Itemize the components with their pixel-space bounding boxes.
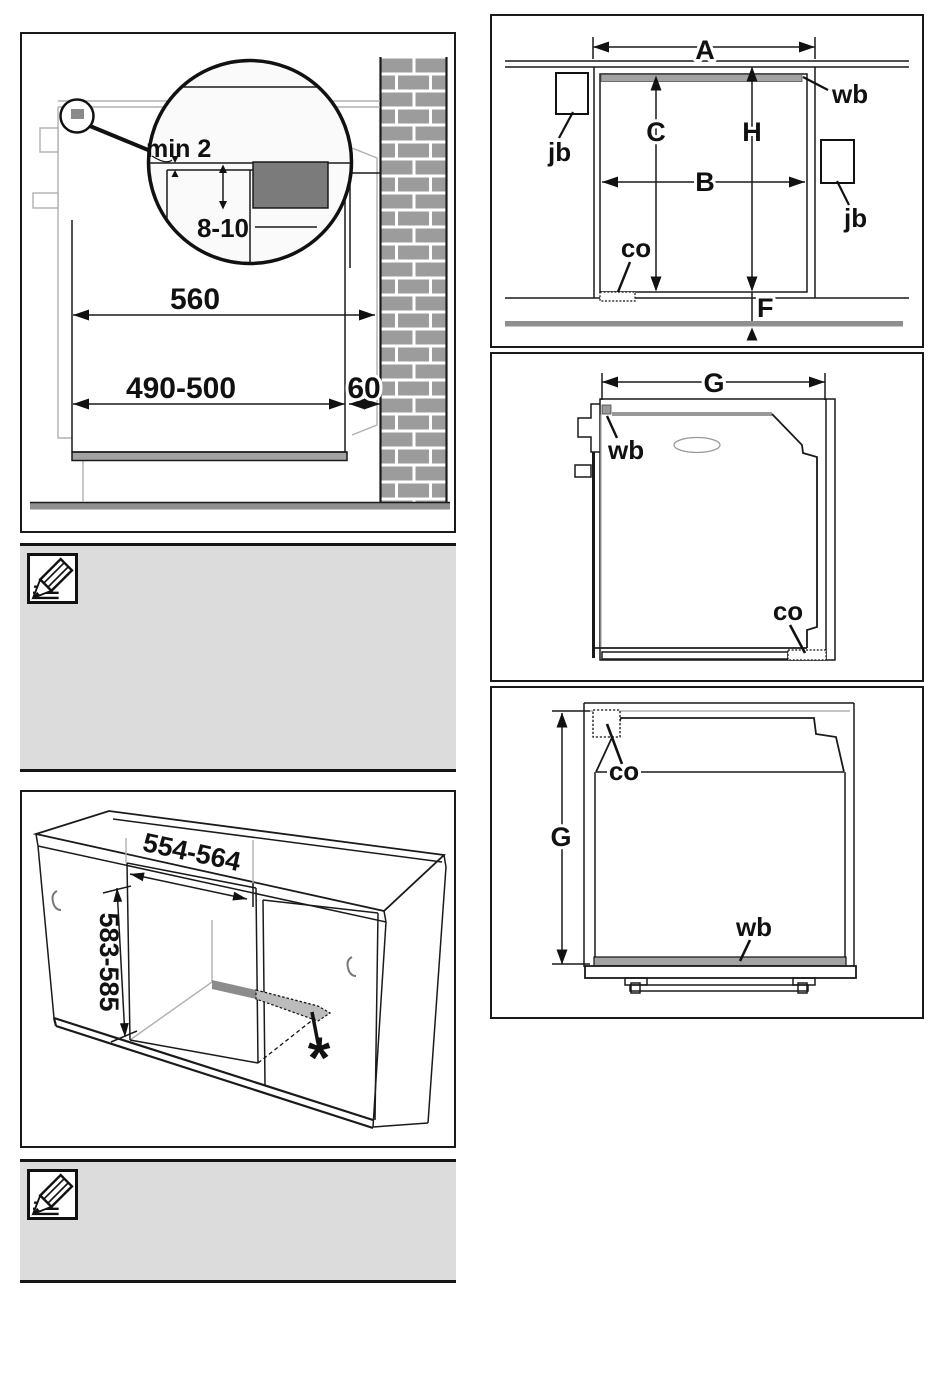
panel-side-section: min 2 8-10 560 490-500 (20, 32, 456, 533)
svg-text:C: C (646, 117, 666, 147)
svg-text:F: F (757, 293, 774, 323)
svg-text:60: 60 (347, 372, 380, 405)
svg-text:co: co (609, 756, 639, 786)
side-section-diagram: min 2 8-10 560 490-500 (20, 32, 456, 533)
svg-text:wb: wb (607, 435, 644, 465)
dim-overlap-depth: 8-10 (197, 213, 249, 243)
panel-cabinet-3d: 554-564 583-585 * (20, 790, 456, 1148)
svg-text:jb: jb (547, 137, 571, 167)
svg-text:G: G (703, 368, 724, 398)
svg-text:co: co (621, 233, 651, 263)
brick-wall (380, 57, 447, 502)
wall-batten-bar (594, 957, 846, 966)
svg-text:wb: wb (735, 912, 772, 942)
svg-text:A: A (695, 35, 715, 65)
wall-batten-bar (601, 75, 802, 82)
svg-text:583-585: 583-585 (94, 912, 124, 1011)
pencil-note-icon (27, 1169, 78, 1220)
note-box-2 (20, 1159, 456, 1283)
svg-text:jb: jb (843, 203, 867, 233)
svg-text:560: 560 (170, 283, 220, 316)
magnifier-detail: min 2 8-10 (146, 61, 353, 265)
svg-text:wb: wb (831, 79, 868, 109)
svg-text:B: B (695, 167, 715, 197)
pencil-note-icon (27, 553, 78, 604)
panel-top-view: G co wb (490, 686, 924, 1019)
dim-min-gap: min 2 (146, 135, 211, 163)
note-box-1 (20, 543, 456, 772)
floor-line (505, 321, 903, 327)
svg-text:G: G (550, 822, 571, 852)
cabinet-3d-diagram: 554-564 583-585 * (20, 790, 456, 1148)
detail-marker-circle (61, 100, 94, 133)
top-view-diagram: G co wb (490, 686, 924, 1019)
svg-text:*: * (308, 1026, 331, 1091)
svg-text:490-500: 490-500 (126, 372, 236, 405)
dim-wall-clearance: 60 (347, 372, 380, 410)
svg-text:co: co (773, 596, 803, 626)
panel-side-view: G wb co (490, 352, 924, 682)
floor-line (30, 503, 450, 510)
front-view-diagram: A C H B (490, 14, 924, 348)
manual-page: min 2 8-10 560 490-500 (0, 0, 950, 1373)
side-view-diagram: G wb co (490, 352, 924, 682)
panel-front-view: A C H B (490, 14, 924, 348)
svg-text:H: H (742, 117, 762, 147)
